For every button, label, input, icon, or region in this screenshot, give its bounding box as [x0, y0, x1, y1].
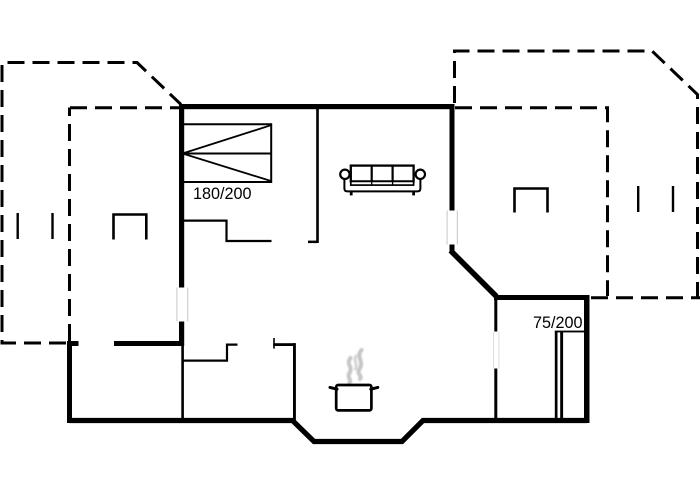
svg-text:180/200: 180/200 [193, 185, 252, 203]
svg-text:75/200: 75/200 [533, 314, 583, 332]
